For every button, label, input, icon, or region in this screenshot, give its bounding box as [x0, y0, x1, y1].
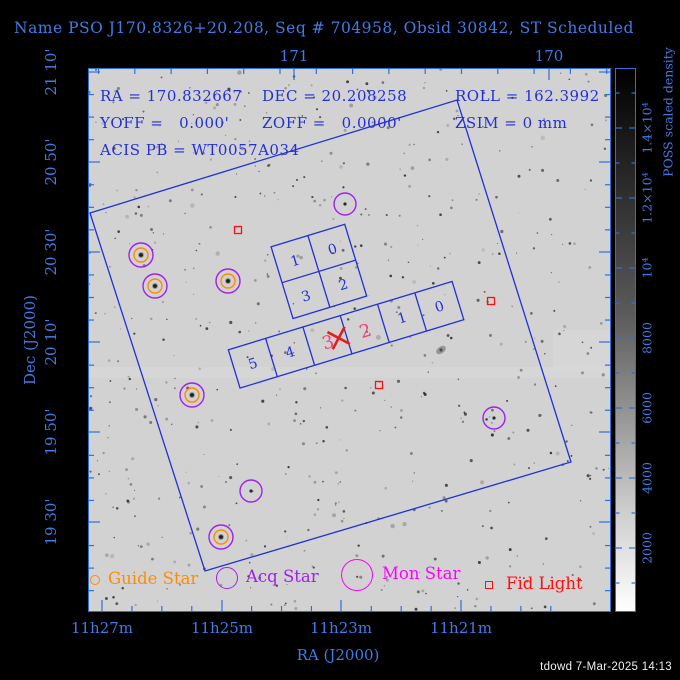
colorbar-tick-label: 10⁴: [640, 258, 655, 279]
colorbar-tick-label: 2000: [640, 532, 655, 564]
dec-axis-tick-label: 20 30': [42, 228, 60, 275]
dec-axis-tick-label: 19 30': [42, 498, 60, 545]
info-yoff: YOFF = 0.000': [100, 114, 229, 132]
info-roll: ROLL = 162.3992: [455, 87, 600, 105]
colorbar-tick-label: 6000: [640, 392, 655, 424]
guide-star-legend-icon: [90, 575, 100, 585]
top-axis-tick-label: 171: [280, 47, 309, 65]
plot-title: Name PSO J170.8326+20.208, Seq # 704958,…: [14, 19, 666, 37]
colorbar-tick-label: 1.4×10⁴: [640, 102, 655, 153]
legend-label: Fid Light: [506, 574, 583, 593]
user-datestamp: tdowd 7-Mar-2025 14:13: [540, 661, 672, 673]
dec-axis-tick-label: 19 50': [42, 408, 60, 455]
legend-label: Mon Star: [382, 564, 460, 583]
legend-label: Guide Star: [108, 569, 198, 588]
info-acis-pb: ACIS PB = WT0057A034: [100, 141, 300, 159]
mon-star-legend-icon: [341, 559, 373, 591]
colorbar-tick-label: 4000: [640, 462, 655, 494]
colorbar-axis-title: POSS scaled density: [661, 47, 676, 177]
colorbar-tick-label: 1.2×10⁴: [640, 172, 655, 223]
acq-star-legend-icon: [216, 567, 238, 589]
info-zoff: ZOFF = 0.0000': [262, 114, 402, 132]
info-zsim: ZSIM = 0 mm: [455, 114, 567, 132]
colorbar: [615, 68, 636, 612]
bottom-axis-tick-label: 11h23m: [310, 619, 372, 637]
top-axis-tick-label: 170: [535, 47, 564, 65]
obsvis-window: { "title": "Name PSO J170.8326+20.208, S…: [0, 0, 680, 680]
info-dec: DEC = 20.208258: [262, 87, 407, 105]
bottom-axis-tick-label: 11h21m: [430, 619, 492, 637]
ra-axis-title: RA (J2000): [297, 646, 380, 664]
dec-axis-title: Dec (J2000): [21, 295, 39, 385]
colorbar-tick-label: 8000: [640, 322, 655, 354]
legend-label: Acq Star: [246, 567, 319, 586]
fid-light-legend-icon: [485, 581, 493, 589]
dec-axis-tick-label: 20 50': [42, 138, 60, 185]
bottom-axis-tick-label: 11h25m: [191, 619, 253, 637]
bottom-axis-tick-label: 11h27m: [71, 619, 133, 637]
info-ra: RA = 170.832667: [100, 87, 242, 105]
dec-axis-tick-label: 20 10': [42, 318, 60, 365]
dec-axis-tick-label: 21 10': [42, 48, 60, 95]
